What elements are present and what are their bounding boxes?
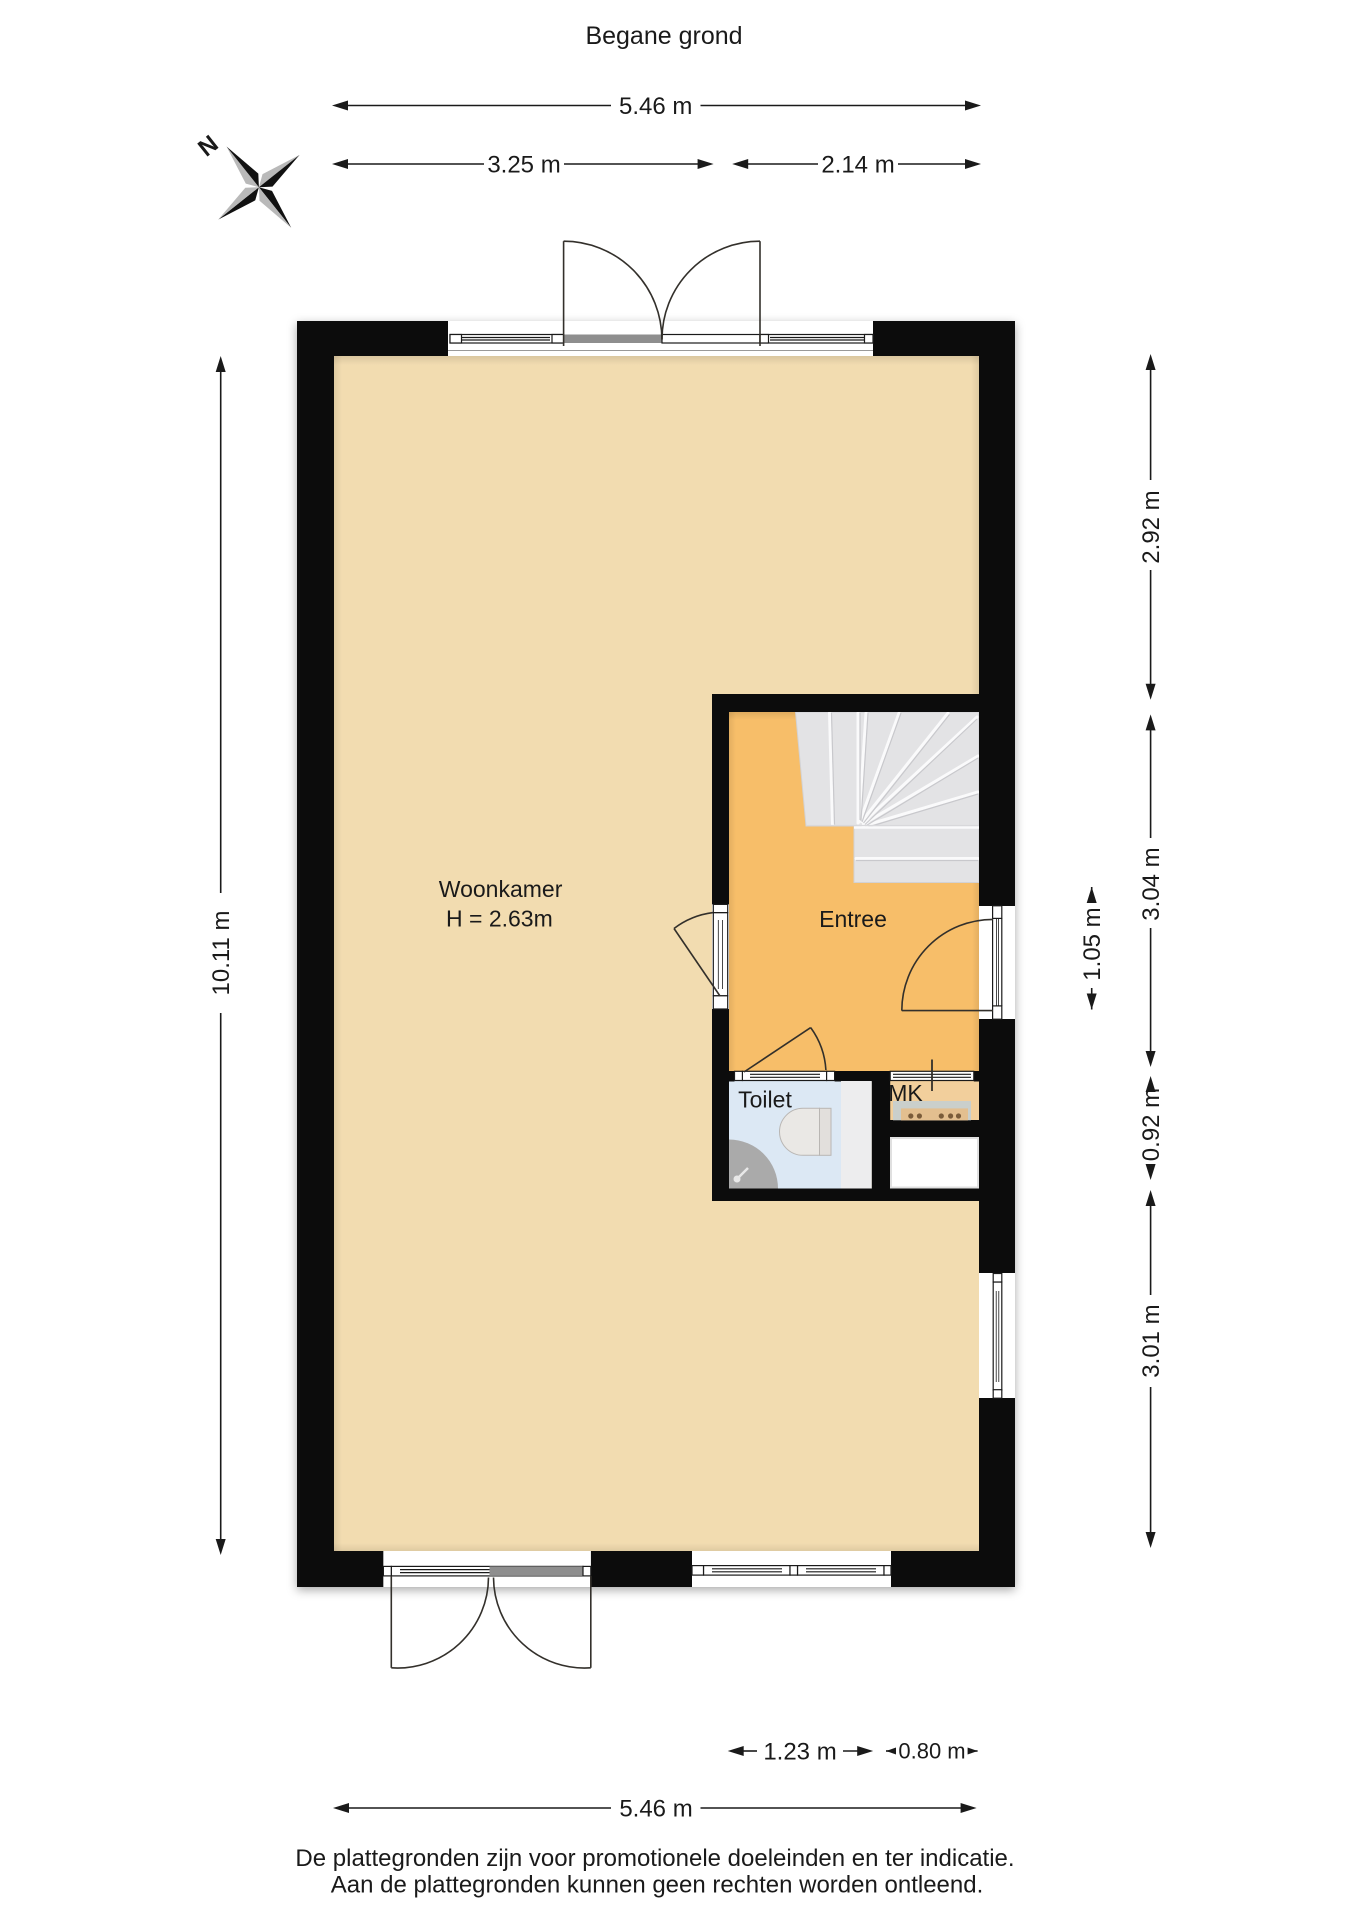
svg-text:0.92 m: 0.92 m [1138,1088,1165,1161]
svg-text:Begane grond: Begane grond [585,22,742,50]
svg-text:3.04 m: 3.04 m [1138,847,1165,920]
svg-text:2.92 m: 2.92 m [1138,490,1165,563]
svg-text:Woonkamer: Woonkamer [439,876,563,902]
svg-text:2.14 m: 2.14 m [821,152,894,179]
svg-text:N: N [193,130,223,162]
svg-text:10.11 m: 10.11 m [208,911,235,996]
svg-text:1.05 m: 1.05 m [1079,907,1106,980]
svg-text:Toilet: Toilet [738,1087,792,1113]
svg-text:5.46 m: 5.46 m [619,93,692,120]
svg-text:3.25 m: 3.25 m [487,152,560,179]
svg-text:De plattegronden zijn voor pro: De plattegronden zijn voor promotionele … [295,1845,1014,1872]
svg-text:3.01 m: 3.01 m [1138,1304,1165,1377]
svg-text:5.46 m: 5.46 m [619,1796,692,1823]
svg-text:0.80 m: 0.80 m [898,1739,965,1764]
svg-text:H = 2.63m: H = 2.63m [446,906,553,932]
svg-text:Aan de plattegronden kunnen ge: Aan de plattegronden kunnen geen rechten… [331,1872,984,1899]
svg-text:Entree: Entree [819,906,887,932]
svg-text:1.23 m: 1.23 m [763,1739,836,1766]
svg-text:MK: MK [888,1080,923,1106]
